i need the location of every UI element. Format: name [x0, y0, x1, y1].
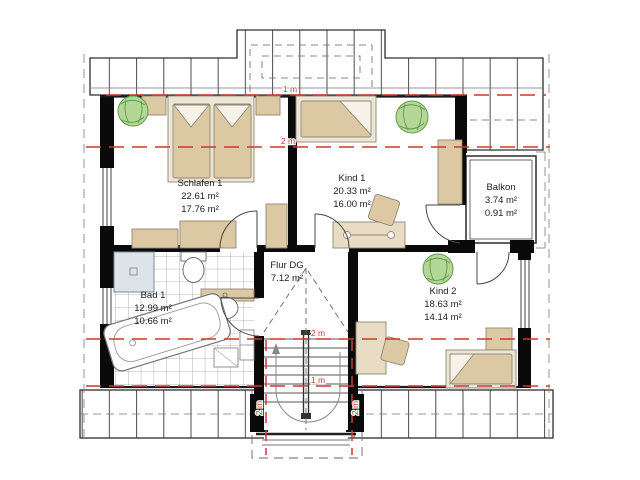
- floor-plan-canvas: 1 m 2 m 2 m 1 m 2 m 2 m Schlafen 1 22.61…: [0, 0, 640, 480]
- bathroom: [102, 252, 254, 386]
- kind2-area2: 14.14 m²: [424, 312, 462, 323]
- kind1-name: Kind 1: [339, 173, 366, 184]
- schlafen1-area2: 17.76 m²: [181, 204, 219, 215]
- wall-balcony-bottom-left: [448, 240, 475, 253]
- wall-right-kind2-bottom: [518, 328, 531, 388]
- bad1-name: Bad 1: [141, 290, 166, 301]
- label-bottom-1m: 1 m: [311, 375, 325, 385]
- window-bad: [100, 288, 114, 324]
- floor-plan-page: 1 m 2 m 2 m 1 m 2 m 2 m Schlafen 1 22.61…: [0, 0, 640, 480]
- wardrobe-schlafen: [266, 204, 287, 248]
- double-bed: [168, 96, 254, 182]
- balkon-area2: 0.91 m²: [485, 208, 517, 219]
- room-label-balkon: Balkon 3.74 m² 0.91 m²: [485, 182, 517, 219]
- kind1-area2: 16.00 m²: [333, 199, 371, 210]
- label-bottom-2m: 2 m: [311, 328, 325, 338]
- kind2-area1: 18.63 m²: [424, 299, 462, 310]
- wall-bad-flur-a: [254, 252, 264, 298]
- kind1-area1: 20.33 m²: [333, 186, 371, 197]
- label-stair-left-2m: 2 m: [254, 401, 264, 415]
- room-label-kind2: Kind 2 18.63 m² 14.14 m²: [424, 286, 462, 323]
- wall-right-kind2-top: [518, 248, 531, 260]
- window-schlafen: [100, 168, 114, 226]
- label-top-1m: 1 m: [283, 84, 297, 94]
- balkon-name: Balkon: [486, 182, 515, 193]
- nightstand-right: [256, 96, 280, 115]
- desk-kind2: [356, 322, 386, 374]
- single-bed-kind2: [446, 350, 516, 388]
- plant-schlafen: [118, 96, 148, 126]
- bad1-area1: 12.99 m²: [134, 303, 172, 314]
- label-top-2m: 2 m: [281, 136, 295, 146]
- flur-name: Flur DG: [270, 260, 303, 271]
- balkon-area1: 3.74 m²: [485, 195, 517, 206]
- wardrobe-kind1: [438, 140, 462, 204]
- dresser-low: [132, 229, 178, 248]
- single-bed-kind1: [296, 96, 376, 142]
- plant-kind2: [423, 254, 453, 284]
- kind2-name: Kind 2: [430, 286, 457, 297]
- schlafen1-area1: 22.61 m²: [181, 191, 219, 202]
- bad1-area2: 10.66 m²: [134, 316, 172, 327]
- wall-kind1-flur-a: [296, 245, 315, 252]
- plant-kind1: [396, 101, 428, 133]
- label-stair-right-2m: 2 m: [350, 401, 360, 415]
- flur-area1: 7.12 m²: [271, 273, 303, 284]
- desk-kind1: [333, 222, 405, 248]
- window-kind2: [518, 260, 531, 328]
- room-label-schlafen1: Schlafen 1 22.61 m² 17.76 m²: [178, 178, 223, 215]
- shower: [114, 252, 154, 292]
- laundry-basket: [214, 348, 238, 367]
- room-label-kind1: Kind 1 20.33 m² 16.00 m²: [333, 173, 371, 210]
- schlafen1-name: Schlafen 1: [178, 178, 223, 189]
